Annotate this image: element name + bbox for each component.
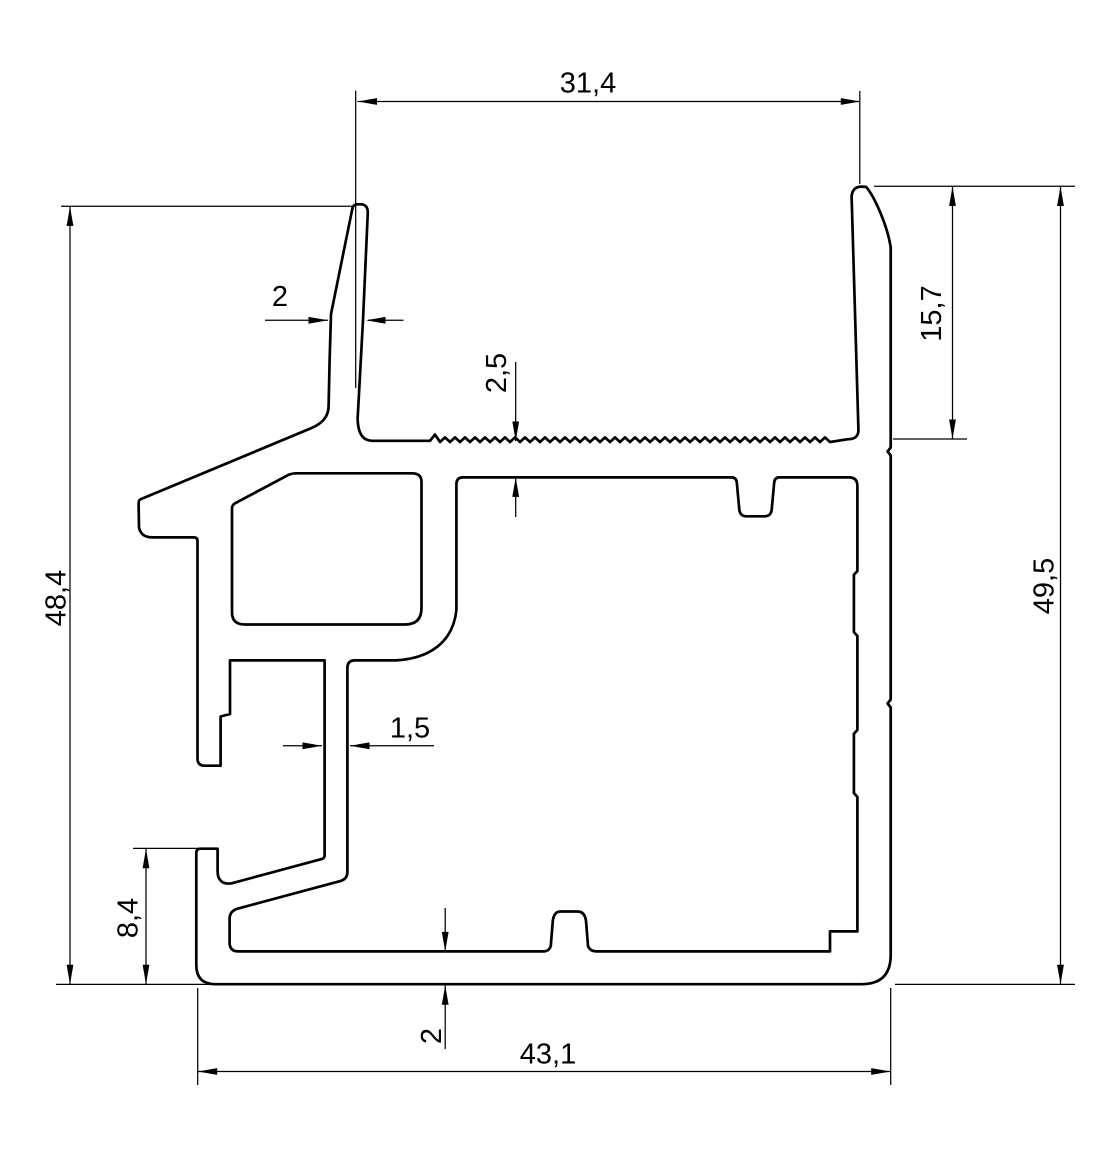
svg-text:43,1: 43,1 (520, 1039, 576, 1071)
svg-text:2: 2 (416, 1028, 448, 1044)
svg-text:31,4: 31,4 (560, 67, 616, 99)
svg-text:2,5: 2,5 (481, 353, 513, 393)
svg-text:15,7: 15,7 (916, 285, 948, 341)
svg-text:2: 2 (272, 281, 288, 313)
svg-text:49,5: 49,5 (1029, 558, 1061, 614)
svg-text:48,4: 48,4 (41, 570, 73, 626)
svg-text:1,5: 1,5 (390, 713, 430, 745)
svg-text:8,4: 8,4 (113, 898, 145, 938)
